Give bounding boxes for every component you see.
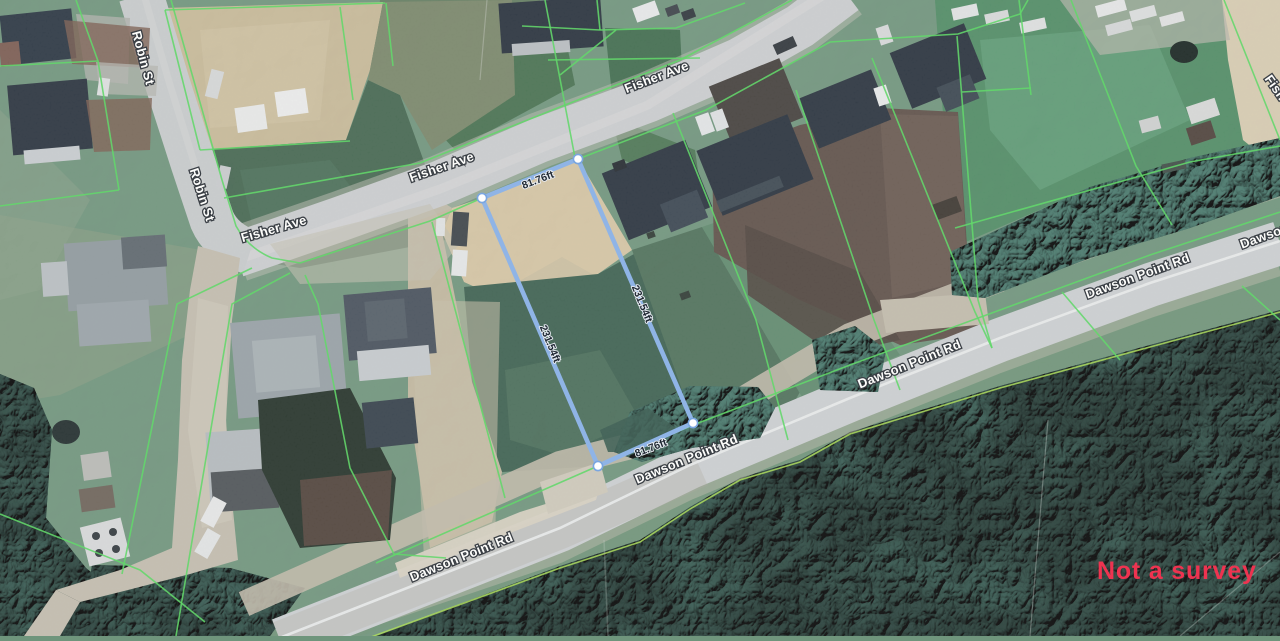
svg-text:Not a survey: Not a survey (1097, 557, 1257, 585)
